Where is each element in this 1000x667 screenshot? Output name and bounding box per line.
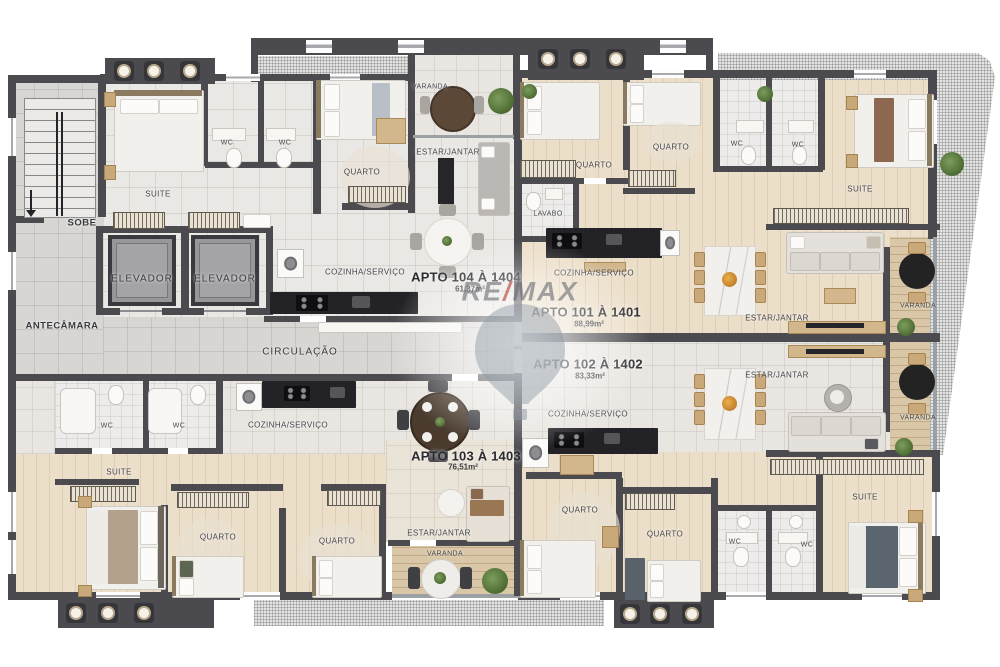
glass-door bbox=[413, 135, 515, 138]
wall bbox=[55, 448, 219, 454]
floor-plan: SOBE ANTECÂMARA ELEVADOR ELEVADOR CIRCUL… bbox=[0, 0, 1000, 667]
ceiling-light-icon bbox=[144, 61, 164, 81]
room-label-cozinha: COZINHA/SERVIÇO bbox=[248, 421, 328, 430]
room-label-estar-jantar: ESTAR/JANTAR bbox=[745, 371, 809, 380]
pillow bbox=[140, 547, 158, 581]
ceiling-light-icon bbox=[570, 49, 590, 69]
sofa-cushion bbox=[850, 252, 880, 271]
pillow bbox=[527, 570, 542, 594]
wall bbox=[216, 380, 223, 454]
chair bbox=[908, 242, 926, 254]
label-elevador-2: ELEVADOR bbox=[194, 274, 256, 285]
tv bbox=[806, 349, 864, 354]
room-label-suite: SUITE bbox=[106, 468, 132, 477]
room-label-wc: WC bbox=[792, 142, 804, 149]
window bbox=[8, 492, 16, 532]
closet bbox=[177, 492, 249, 508]
washing-machine bbox=[660, 230, 680, 256]
headboard bbox=[918, 522, 923, 592]
room-label-quarto: QUARTO bbox=[344, 168, 380, 177]
wall bbox=[246, 308, 273, 315]
stool bbox=[755, 270, 766, 285]
plant bbox=[895, 438, 913, 456]
apartment-name-103: APTO 103 À 1403 bbox=[411, 449, 521, 464]
ceiling-light-icon bbox=[134, 603, 154, 623]
door-opening bbox=[452, 374, 478, 381]
tv-panel bbox=[438, 158, 454, 204]
ceiling-light-icon bbox=[114, 61, 134, 81]
window bbox=[8, 118, 16, 156]
desk bbox=[376, 118, 406, 144]
pillow bbox=[650, 581, 664, 598]
closet bbox=[188, 212, 240, 229]
room-label-suite: SUITE bbox=[145, 190, 171, 199]
bathroom-sink bbox=[789, 515, 803, 529]
sofa-pillow bbox=[790, 236, 805, 249]
pillow bbox=[324, 84, 340, 110]
table-plant bbox=[435, 417, 445, 427]
pillow bbox=[319, 560, 333, 578]
pillow bbox=[650, 564, 664, 581]
apartment-area-104: 61,37m² bbox=[455, 285, 485, 294]
elevator-door bbox=[120, 310, 162, 312]
pillow bbox=[908, 131, 926, 161]
door-opening bbox=[168, 448, 188, 454]
sofa-pillow bbox=[481, 146, 495, 158]
plate bbox=[422, 432, 432, 442]
coffee-table bbox=[824, 288, 856, 304]
bench bbox=[243, 214, 271, 228]
wall bbox=[171, 484, 283, 491]
plant bbox=[522, 84, 537, 99]
window bbox=[8, 540, 16, 574]
wall bbox=[258, 80, 264, 164]
toilet bbox=[526, 192, 541, 211]
door-opening bbox=[584, 178, 606, 184]
stool bbox=[755, 410, 766, 425]
pillow bbox=[630, 85, 644, 104]
closet bbox=[773, 208, 909, 224]
stool bbox=[694, 374, 705, 389]
service-counter bbox=[318, 322, 462, 333]
nightstand bbox=[104, 92, 116, 107]
plate bbox=[448, 432, 458, 442]
terrace-hatch-right-diagonal bbox=[930, 53, 995, 455]
chair bbox=[428, 380, 448, 392]
apartment-name-101: APTO 101 À 1401 bbox=[531, 305, 641, 320]
stair-rail bbox=[56, 112, 58, 216]
room-label-varanda: VARANDA bbox=[427, 551, 463, 558]
kitchen-sink bbox=[330, 387, 345, 398]
ceiling-light-icon bbox=[682, 604, 702, 624]
room-label-quarto: QUARTO bbox=[562, 506, 598, 515]
room-label-quarto: QUARTO bbox=[576, 161, 612, 170]
room-label-wc: WC bbox=[221, 140, 233, 147]
pillow bbox=[140, 511, 158, 545]
stool bbox=[694, 288, 705, 303]
wall bbox=[205, 162, 317, 168]
pillow bbox=[324, 111, 340, 137]
toilet bbox=[226, 148, 242, 168]
window bbox=[652, 70, 684, 78]
room-label-wc: WC bbox=[279, 140, 291, 147]
pillow bbox=[899, 527, 917, 556]
room-label-wc: WC bbox=[173, 423, 185, 430]
wall bbox=[96, 308, 120, 315]
stove bbox=[554, 432, 584, 448]
window bbox=[854, 70, 886, 78]
bathroom-vanity bbox=[788, 120, 814, 133]
chair bbox=[439, 204, 456, 216]
nightstand bbox=[78, 585, 92, 597]
pillow bbox=[630, 104, 644, 123]
wall-unit-divider bbox=[522, 333, 940, 342]
staircase bbox=[24, 98, 96, 218]
label-elevador-1: ELEVADOR bbox=[111, 274, 173, 285]
sofa-cushion bbox=[791, 416, 821, 436]
room-label-suite: SUITE bbox=[852, 493, 878, 502]
room-label-estar-jantar: ESTAR/JANTAR bbox=[416, 148, 480, 157]
window bbox=[306, 40, 332, 53]
dresser bbox=[602, 526, 619, 548]
coffee-table-top bbox=[830, 390, 844, 404]
elevator-1 bbox=[108, 235, 176, 306]
toilet bbox=[733, 547, 749, 567]
plant bbox=[897, 318, 915, 336]
room-label-wc: WC bbox=[729, 539, 741, 546]
washing-machine bbox=[277, 249, 304, 278]
window bbox=[240, 592, 280, 600]
chair bbox=[908, 353, 926, 365]
wall-elevator-shaft bbox=[181, 233, 189, 310]
wall bbox=[55, 479, 139, 485]
pillow bbox=[908, 99, 926, 129]
room-label-quarto: QUARTO bbox=[319, 537, 355, 546]
room-label-wc: WC bbox=[731, 141, 743, 148]
desk bbox=[560, 455, 594, 475]
headboard bbox=[172, 556, 176, 596]
pillow bbox=[899, 558, 917, 587]
wall bbox=[623, 188, 695, 194]
wall bbox=[8, 75, 103, 83]
stair-arrow bbox=[30, 190, 32, 210]
chair bbox=[420, 96, 430, 114]
apartment-name-104: APTO 104 À 1404 bbox=[411, 270, 521, 285]
stove bbox=[284, 386, 310, 401]
wall bbox=[711, 478, 718, 598]
bathroom-sink bbox=[737, 515, 751, 529]
glass-rail bbox=[392, 594, 528, 598]
kitchen-sink bbox=[352, 296, 370, 308]
balcony-table bbox=[430, 86, 476, 132]
sofa-cushion bbox=[820, 252, 850, 271]
pillow bbox=[319, 578, 333, 596]
elevator-2 bbox=[191, 235, 259, 306]
wall-elevator-shaft bbox=[96, 226, 103, 315]
sofa-throw bbox=[470, 500, 504, 516]
chair bbox=[460, 567, 472, 589]
toilet bbox=[190, 385, 206, 405]
window bbox=[660, 40, 686, 53]
room-label-quarto: QUARTO bbox=[200, 533, 236, 542]
door-opening bbox=[514, 322, 522, 346]
kitchen-sink bbox=[606, 234, 622, 245]
headboard bbox=[520, 540, 524, 596]
ceiling-light-icon bbox=[180, 61, 200, 81]
wall bbox=[766, 511, 772, 596]
chair bbox=[410, 233, 422, 250]
label-circulacao: CIRCULAÇÃO bbox=[262, 347, 338, 358]
blanket bbox=[874, 98, 894, 162]
pillow bbox=[120, 99, 159, 114]
stove bbox=[296, 295, 328, 311]
wall bbox=[816, 455, 823, 595]
ceiling-light-icon bbox=[538, 49, 558, 69]
room-label-varanda: VARANDA bbox=[412, 84, 448, 91]
wall bbox=[706, 38, 713, 78]
stair-arrow-head bbox=[26, 210, 36, 217]
sheet-fold bbox=[88, 510, 108, 584]
room-label-estar-jantar: ESTAR/JANTAR bbox=[407, 529, 471, 538]
window bbox=[932, 492, 940, 536]
chair bbox=[908, 403, 926, 415]
pillow bbox=[159, 99, 198, 114]
headboard bbox=[158, 506, 164, 588]
ceiling-light-icon bbox=[620, 604, 640, 624]
door-opening bbox=[410, 540, 436, 546]
ceiling-light-icon bbox=[66, 603, 86, 623]
sofa-pillow bbox=[864, 438, 879, 450]
terrace-plant bbox=[940, 152, 964, 176]
room-label-estar-jantar: ESTAR/JANTAR bbox=[745, 314, 809, 323]
pillow bbox=[527, 545, 542, 569]
window bbox=[726, 592, 766, 600]
fruit-bowl bbox=[722, 396, 737, 411]
bathroom-vanity bbox=[736, 120, 764, 133]
stool bbox=[694, 252, 705, 267]
chair bbox=[397, 410, 409, 430]
plant bbox=[482, 568, 508, 594]
nightstand bbox=[846, 154, 858, 168]
closet bbox=[113, 212, 165, 229]
headboard bbox=[312, 556, 316, 596]
kitchen-counter bbox=[270, 292, 418, 314]
toilet bbox=[792, 146, 807, 165]
stove bbox=[552, 233, 582, 249]
apartment-area-103: 76,51m² bbox=[448, 463, 478, 472]
chair bbox=[472, 233, 484, 250]
sofa-cushion bbox=[790, 252, 820, 271]
wall bbox=[162, 308, 204, 315]
room-label-wc: WC bbox=[101, 423, 113, 430]
toilet bbox=[108, 385, 124, 405]
closet bbox=[628, 170, 676, 187]
toilet bbox=[785, 547, 801, 567]
chair bbox=[408, 567, 420, 589]
ceiling-light-icon bbox=[606, 49, 626, 69]
nightstand bbox=[78, 496, 92, 508]
door-opening bbox=[514, 349, 522, 373]
headboard bbox=[623, 82, 627, 124]
room-label-varanda: VARANDA bbox=[900, 303, 936, 310]
door-opening bbox=[92, 448, 112, 454]
room-label-quarto: QUARTO bbox=[647, 530, 683, 539]
window bbox=[398, 40, 424, 53]
stool bbox=[694, 270, 705, 285]
plant bbox=[488, 88, 514, 114]
chair bbox=[468, 410, 480, 430]
table-plant bbox=[434, 572, 446, 584]
sofa-pillow bbox=[470, 488, 484, 500]
tv bbox=[806, 323, 864, 328]
nightstand bbox=[908, 589, 923, 602]
ceiling-light-icon bbox=[650, 604, 670, 624]
sofa-pillow bbox=[866, 236, 881, 249]
balcony-table bbox=[899, 364, 935, 400]
stool bbox=[755, 392, 766, 407]
stool bbox=[694, 392, 705, 407]
wardrobe bbox=[625, 558, 645, 600]
closet bbox=[327, 490, 381, 506]
label-sobe: SOBE bbox=[68, 218, 97, 229]
headboard bbox=[114, 90, 202, 96]
pillow bbox=[527, 111, 542, 135]
apartment-area-101: 88,99m² bbox=[574, 320, 604, 329]
plate bbox=[448, 402, 458, 412]
washing-machine bbox=[522, 438, 549, 468]
bathtub bbox=[60, 388, 96, 434]
apartment-area-102: 83,33m² bbox=[575, 372, 605, 381]
terrace-hatch-bottom bbox=[254, 600, 604, 626]
headboard bbox=[927, 94, 932, 166]
apartment-name-102: APTO 102 À 1402 bbox=[533, 357, 643, 372]
nightstand bbox=[104, 165, 116, 180]
balcony-table bbox=[899, 253, 935, 289]
pillow bbox=[179, 560, 194, 578]
ceiling-light-icon bbox=[98, 603, 118, 623]
nightstand bbox=[908, 510, 923, 523]
side-table bbox=[437, 489, 465, 517]
toilet bbox=[276, 148, 292, 168]
room-label-cozinha: COZINHA/SERVIÇO bbox=[554, 269, 634, 278]
room-label-lavabo: LAVABO bbox=[533, 211, 562, 218]
window bbox=[226, 74, 260, 81]
wall bbox=[408, 53, 415, 139]
sheet-fold bbox=[850, 526, 866, 588]
closet bbox=[770, 459, 924, 475]
stool bbox=[694, 410, 705, 425]
elevator-door bbox=[204, 310, 246, 312]
stool bbox=[755, 288, 766, 303]
closet bbox=[348, 186, 406, 203]
wall bbox=[766, 224, 940, 230]
terrace-hatch-top bbox=[254, 56, 408, 76]
table-plant bbox=[442, 236, 452, 246]
room-label-suite: SUITE bbox=[847, 185, 873, 194]
kitchen-sink bbox=[604, 433, 620, 444]
plant bbox=[757, 86, 773, 102]
room-label-varanda: VARANDA bbox=[900, 415, 936, 422]
fruit-bowl bbox=[722, 272, 737, 287]
wall bbox=[279, 508, 286, 596]
sofa-pillow bbox=[481, 198, 495, 210]
chair bbox=[474, 96, 484, 114]
room-label-quarto: QUARTO bbox=[653, 143, 689, 152]
wall bbox=[713, 166, 823, 172]
room-label-cozinha: COZINHA/SERVIÇO bbox=[548, 410, 628, 419]
sink bbox=[545, 188, 563, 200]
window bbox=[8, 252, 16, 290]
wall bbox=[818, 78, 825, 170]
closet bbox=[625, 493, 675, 510]
sofa-cushion bbox=[851, 416, 881, 436]
plate bbox=[422, 402, 432, 412]
headboard bbox=[316, 80, 321, 138]
label-antecamara: ANTECÂMARA bbox=[25, 321, 98, 332]
sofa-cushion bbox=[821, 416, 851, 436]
stair-rail bbox=[61, 112, 63, 216]
washing-machine bbox=[236, 383, 262, 411]
closet bbox=[520, 160, 576, 178]
pillow bbox=[179, 578, 194, 596]
room-label-cozinha: COZINHA/SERVIÇO bbox=[325, 268, 405, 277]
room-label-wc: WC bbox=[801, 542, 813, 549]
toilet bbox=[741, 146, 756, 165]
nightstand bbox=[846, 96, 858, 110]
stool bbox=[755, 252, 766, 267]
wall bbox=[713, 78, 720, 170]
